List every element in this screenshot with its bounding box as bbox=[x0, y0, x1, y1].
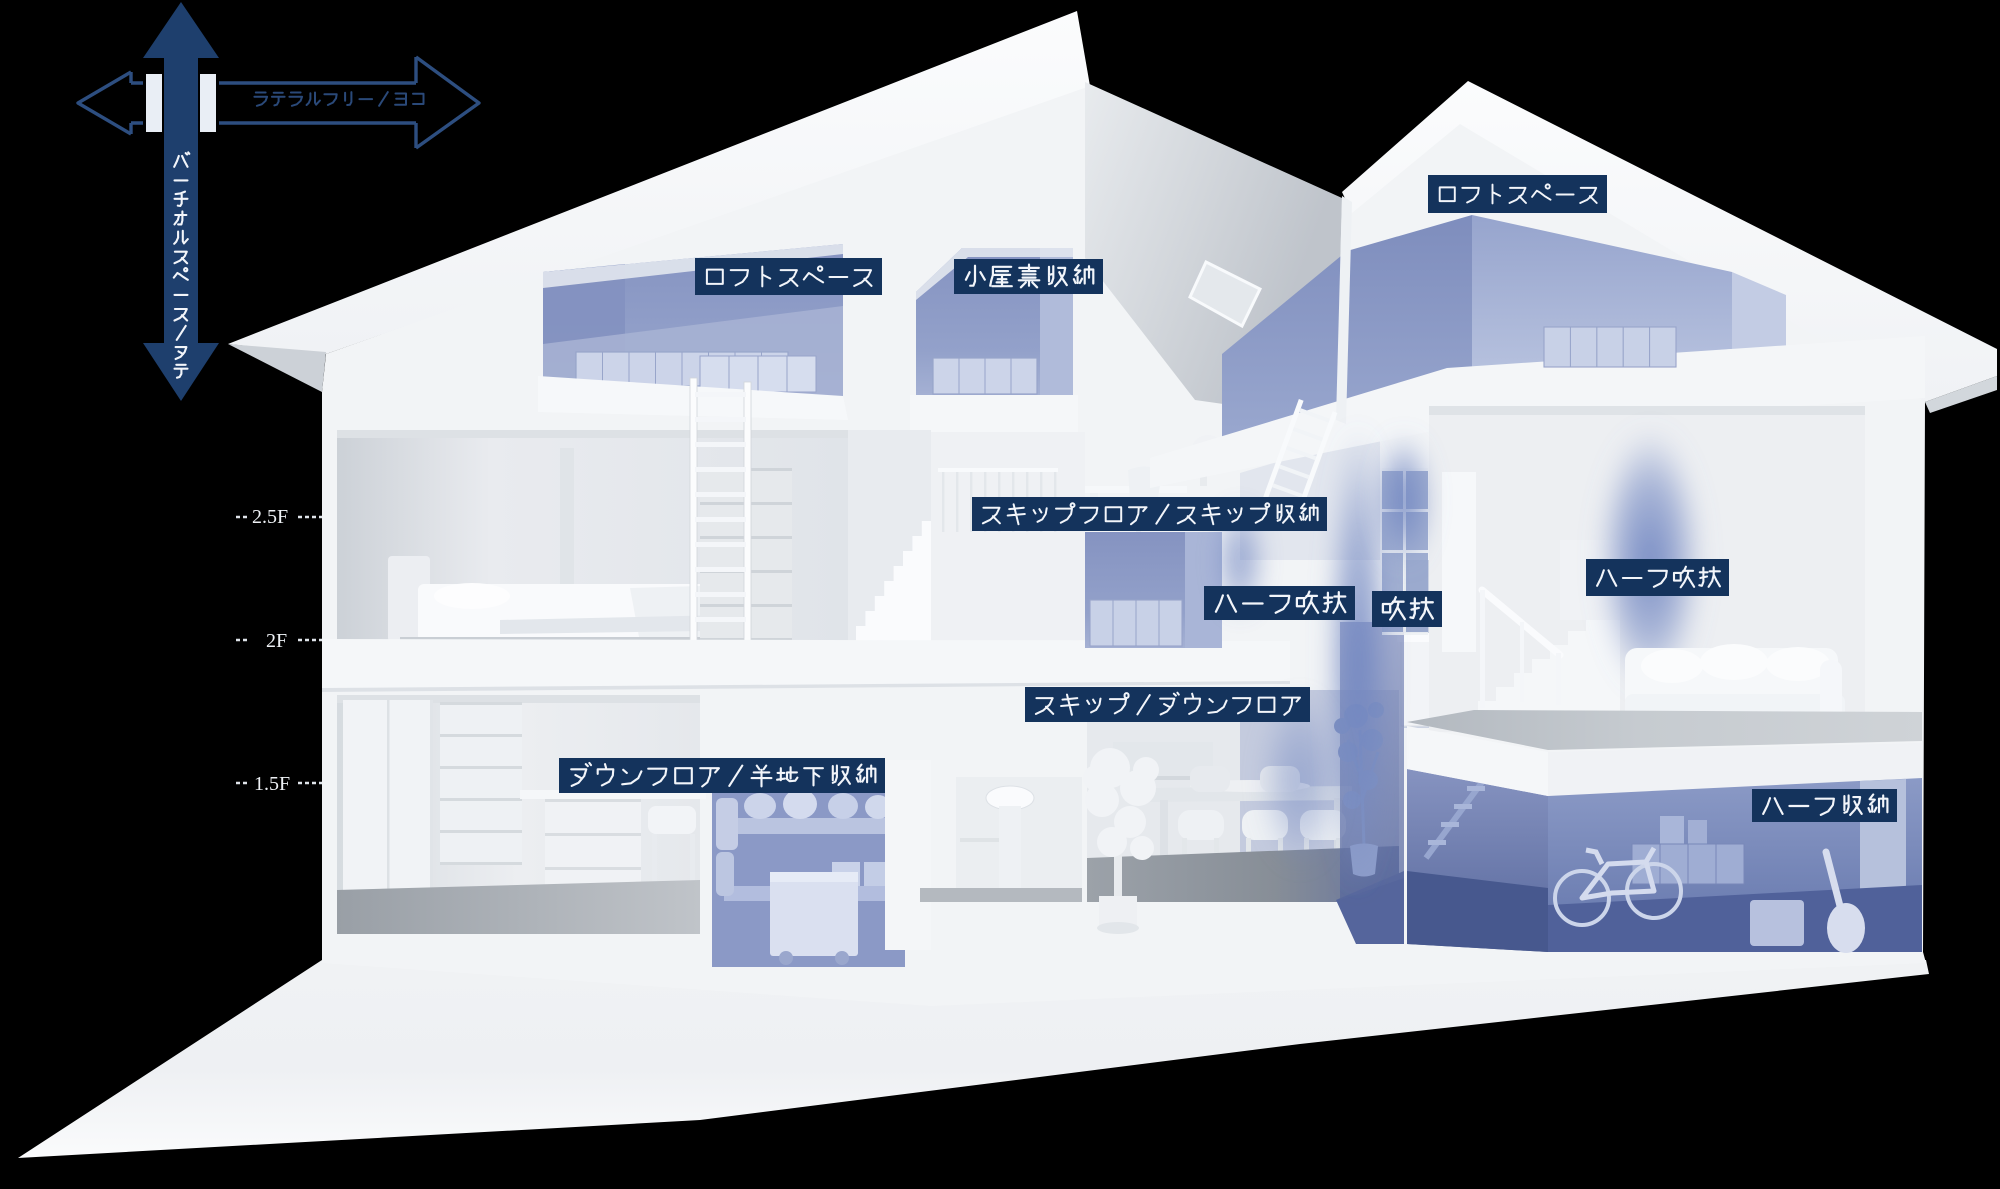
svg-text:1.5F: 1.5F bbox=[254, 773, 290, 795]
svg-text:2F: 2F bbox=[266, 630, 287, 652]
svg-text:2.5F: 2.5F bbox=[252, 506, 288, 528]
